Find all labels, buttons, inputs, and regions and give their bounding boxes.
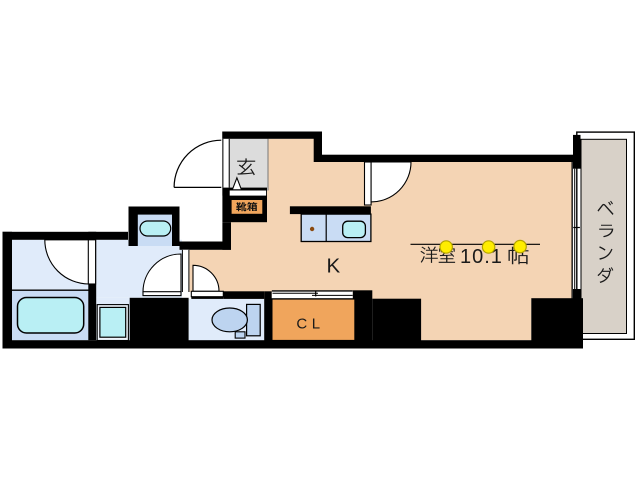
svg-text:10.1: 10.1 — [460, 246, 503, 268]
svg-text:CL: CL — [296, 315, 324, 332]
svg-text:K: K — [326, 255, 340, 278]
